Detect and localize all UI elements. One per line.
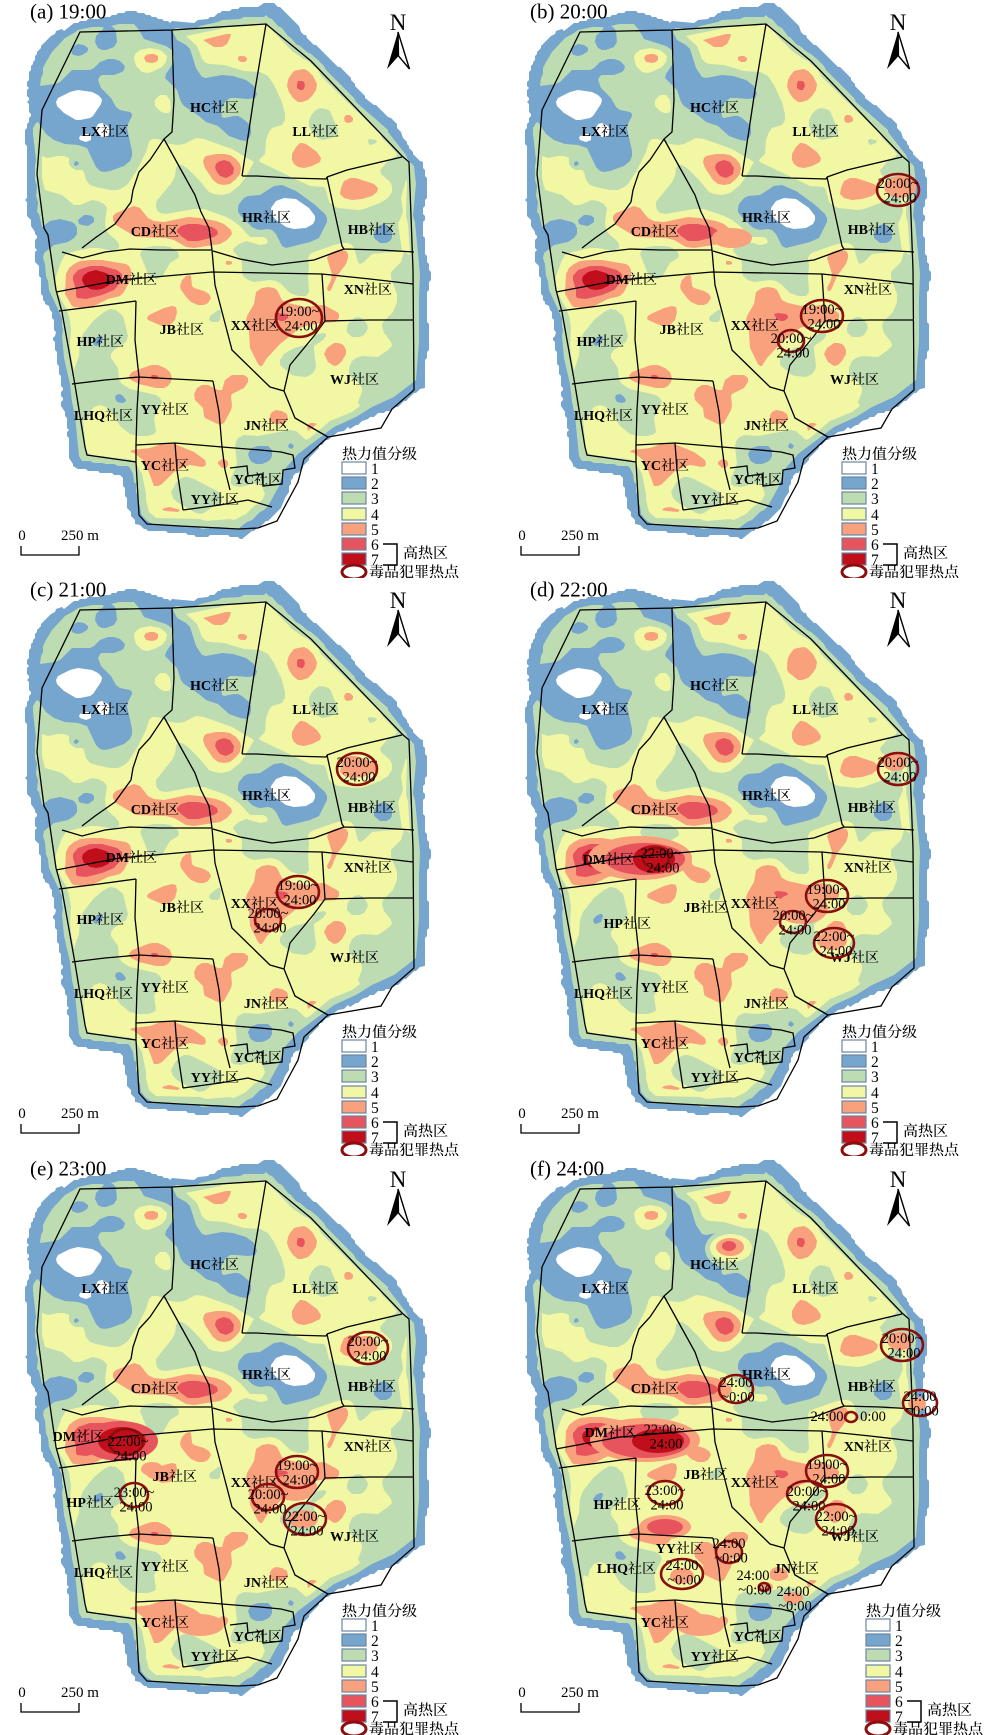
svg-text:~0:00: ~0:00 [905,1403,939,1419]
svg-text:LL: LL [792,703,811,718]
svg-text:24:00: 24:00 [646,860,679,876]
svg-text:HP: HP [604,917,624,932]
svg-text:HB: HB [848,223,868,238]
svg-text:(b) 20:00: (b) 20:00 [530,0,608,24]
svg-text:24:00: 24:00 [282,1472,315,1488]
svg-text:HP: HP [67,1496,87,1511]
svg-text:HR: HR [242,789,264,804]
svg-text:XX: XX [731,1476,751,1491]
svg-text:WJ: WJ [830,373,851,388]
svg-text:24:00: 24:00 [113,1448,146,1464]
svg-text:YC: YC [641,1616,661,1631]
svg-text:HP: HP [577,335,597,350]
svg-text:CD: CD [631,225,651,240]
svg-text:24:00: 24:00 [778,922,811,938]
svg-text:XX: XX [731,319,751,334]
svg-text:XX: XX [731,897,751,912]
svg-text:LHQ: LHQ [574,987,605,1002]
svg-text:LL: LL [792,1282,811,1297]
svg-text:24:00: 24:00 [253,920,286,936]
svg-text:YY: YY [656,1542,676,1557]
svg-text:DM: DM [106,273,129,288]
svg-text:HP: HP [594,1498,614,1513]
svg-text:YC: YC [734,473,754,488]
svg-text:(c) 21:00: (c) 21:00 [30,578,106,602]
svg-text:YY: YY [641,981,661,996]
svg-text:HC: HC [690,1258,711,1273]
svg-text:~0:00: ~0:00 [667,1572,701,1588]
svg-text:YY: YY [691,1650,711,1665]
svg-text:24:00: 24:00 [887,1345,920,1361]
svg-text:(e) 23:00: (e) 23:00 [30,1157,106,1181]
svg-text:DM: DM [53,1430,76,1445]
svg-text:YY: YY [191,493,211,508]
svg-text:YC: YC [641,459,661,474]
svg-text:LX: LX [82,125,101,140]
svg-text:HC: HC [690,101,711,116]
svg-text:YC: YC [234,1630,254,1645]
svg-text:LL: LL [292,703,311,718]
svg-text:HB: HB [348,801,368,816]
svg-text:LX: LX [582,1282,601,1297]
svg-text:JN: JN [744,419,761,434]
svg-text:~0:00: ~0:00 [778,1598,812,1614]
svg-text:LHQ: LHQ [574,409,605,424]
svg-text:YC: YC [734,1630,754,1645]
svg-text:XN: XN [844,861,864,876]
svg-text:HC: HC [190,101,211,116]
svg-text:JB: JB [160,323,176,338]
svg-text:YY: YY [191,1650,211,1665]
svg-text:LX: LX [582,125,601,140]
svg-text:XN: XN [344,283,364,298]
svg-text:LHQ: LHQ [74,1566,105,1581]
svg-text:WJ: WJ [330,373,351,388]
svg-text:24:00: 24:00 [821,1523,854,1539]
svg-text:LX: LX [582,703,601,718]
svg-text:HP: HP [77,335,97,350]
svg-text:~0:00: ~0:00 [714,1550,748,1566]
svg-text:HR: HR [742,789,764,804]
svg-text:LHQ: LHQ [74,987,105,1002]
svg-text:CD: CD [131,225,151,240]
svg-text:LX: LX [82,703,101,718]
svg-text:(d) 22:00: (d) 22:00 [530,578,608,602]
svg-text:YC: YC [734,1051,754,1066]
svg-text:DM: DM [585,1426,608,1441]
svg-text:~0:00: ~0:00 [721,1389,755,1405]
svg-text:LL: LL [792,125,811,140]
svg-text:WJ: WJ [330,951,351,966]
svg-text:XN: XN [844,1440,864,1455]
svg-text:HC: HC [190,679,211,694]
svg-text:YC: YC [141,459,161,474]
svg-text:XN: XN [344,861,364,876]
svg-text:24:00: 24:00 [883,190,916,206]
svg-text:(a) 19:00: (a) 19:00 [30,0,106,24]
svg-text:24:00: 24:00 [883,769,916,785]
svg-text:HB: HB [848,1380,868,1395]
svg-text:CD: CD [631,1382,651,1397]
svg-text:JB: JB [160,901,176,916]
svg-text:YY: YY [141,1560,161,1575]
svg-text:CD: CD [131,1382,151,1397]
svg-text:JB: JB [684,1468,700,1483]
svg-text:WJ: WJ [330,1530,351,1545]
svg-text:24:00: 24:00 [342,769,375,785]
svg-text:LX: LX [82,1282,101,1297]
svg-text:YY: YY [141,981,161,996]
svg-text:JB: JB [153,1470,169,1485]
svg-text:24:00: 24:00 [819,943,852,959]
svg-text:LHQ: LHQ [74,409,105,424]
svg-text:YY: YY [691,1071,711,1086]
svg-text:YY: YY [141,403,161,418]
svg-text:YC: YC [234,1051,254,1066]
svg-text:LL: LL [292,1282,311,1297]
svg-text:24:00: 24:00 [119,1499,152,1515]
svg-text:24:00: 24:00 [807,316,840,332]
svg-text:HB: HB [348,223,368,238]
svg-text:24:00: 24:00 [353,1348,386,1364]
svg-text:24:00: 24:00 [650,1497,683,1513]
svg-text:JN: JN [774,1562,791,1577]
svg-text:JN: JN [244,419,261,434]
svg-text:24:00: 24:00 [810,1409,843,1425]
svg-text:~0:00: ~0:00 [738,1582,772,1598]
svg-text:JN: JN [244,1576,261,1591]
svg-text:YY: YY [641,403,661,418]
svg-text:DM: DM [583,853,606,868]
svg-text:24:00: 24:00 [649,1436,682,1452]
svg-text:HP: HP [77,913,97,928]
svg-text:24:00: 24:00 [776,345,809,361]
svg-text:24:00: 24:00 [290,1523,323,1539]
svg-text:CD: CD [131,803,151,818]
svg-text:LHQ: LHQ [597,1562,628,1577]
svg-text:HR: HR [742,211,764,226]
svg-text:0:00: 0:00 [860,1409,886,1425]
svg-text:24:00: 24:00 [283,892,316,908]
svg-text:HB: HB [848,801,868,816]
svg-text:CD: CD [631,803,651,818]
svg-text:JN: JN [744,997,761,1012]
svg-text:HR: HR [242,211,264,226]
svg-text:DM: DM [106,851,129,866]
svg-text:24:00: 24:00 [812,896,845,912]
svg-text:YC: YC [141,1037,161,1052]
svg-text:HC: HC [690,679,711,694]
svg-text:XX: XX [231,319,251,334]
svg-text:(f) 24:00: (f) 24:00 [530,1157,604,1181]
svg-text:JB: JB [684,901,700,916]
svg-text:24:00: 24:00 [284,318,317,334]
svg-text:YC: YC [641,1037,661,1052]
svg-text:HC: HC [190,1258,211,1273]
svg-text:HR: HR [242,1368,264,1383]
svg-text:HB: HB [348,1380,368,1395]
svg-text:YC: YC [141,1616,161,1631]
svg-text:JN: JN [244,997,261,1012]
svg-text:LL: LL [292,125,311,140]
svg-text:XN: XN [344,1440,364,1455]
svg-text:YC: YC [234,473,254,488]
svg-text:24:00: 24:00 [253,1501,286,1517]
svg-text:XN: XN [844,283,864,298]
svg-text:YY: YY [191,1071,211,1086]
svg-text:JB: JB [660,323,676,338]
svg-text:DM: DM [606,273,629,288]
svg-text:YY: YY [691,493,711,508]
